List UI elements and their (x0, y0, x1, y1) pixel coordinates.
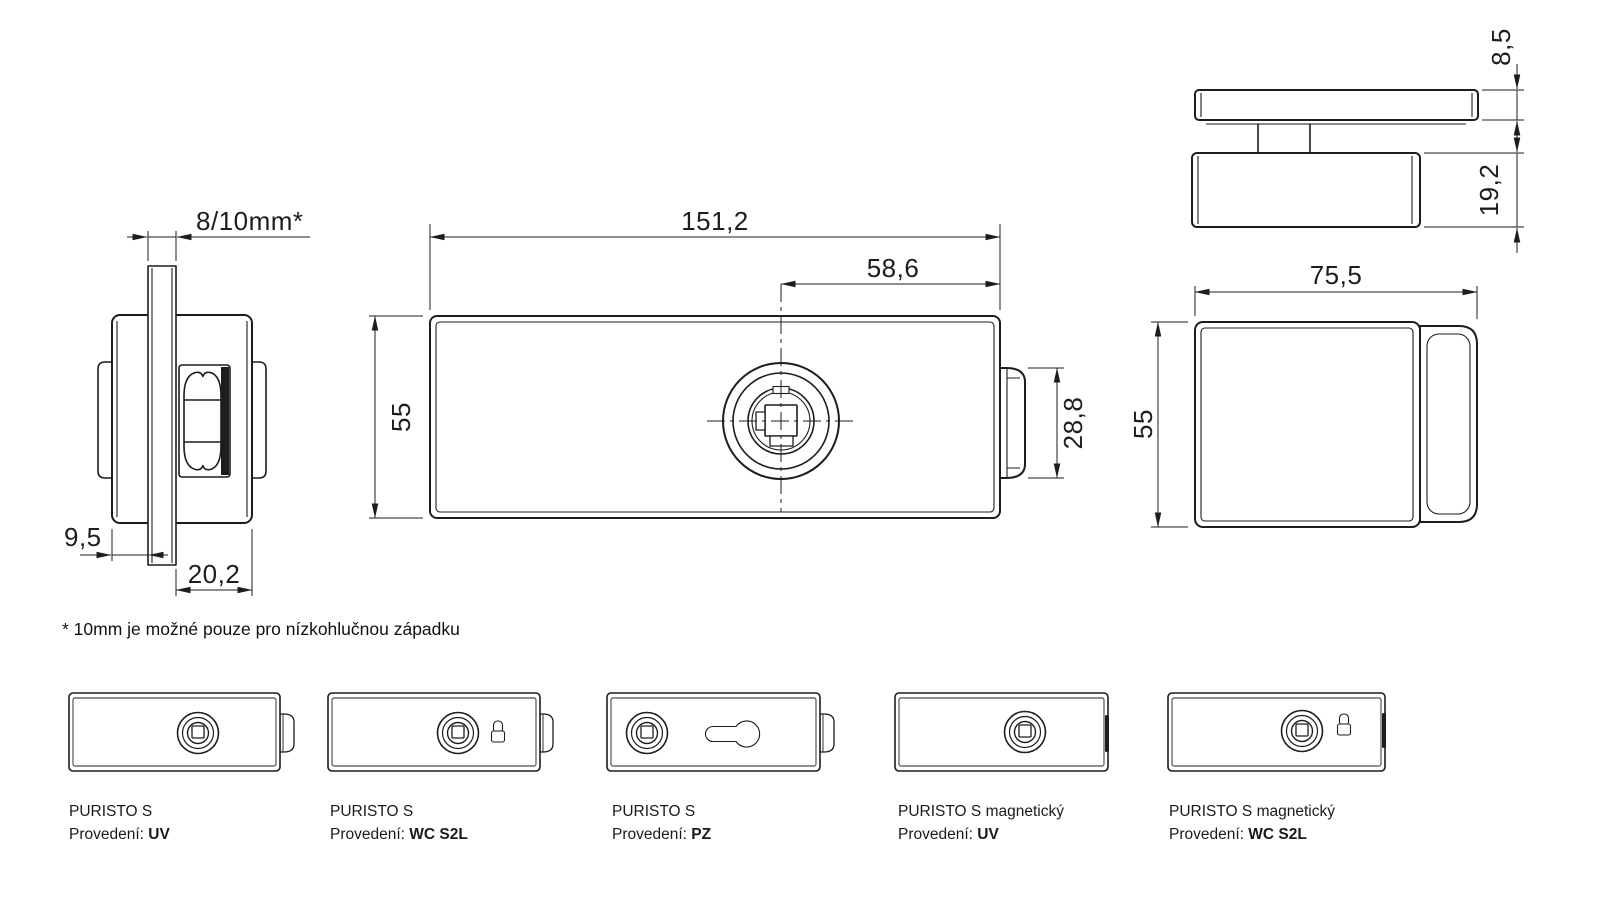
wc-indicator-knob (1338, 714, 1351, 735)
variant-name: PURISTO S magnetický (1169, 800, 1449, 823)
variant-finish-label: Provedení: (612, 826, 687, 843)
technical-drawing-page: 8/10mm* 9,5 20,2 (0, 0, 1600, 915)
dim-glass-thickness-label: 8/10mm* (196, 206, 304, 236)
variant-drawing-magnetic-wc-s2l (1168, 693, 1386, 771)
variant-finish-value: WC S2L (409, 826, 468, 843)
variant-caption: PURISTO S magnetický Provedení: UV (898, 800, 1178, 846)
dim-height-label: 55 (386, 402, 416, 432)
front-lock-body (430, 316, 1000, 518)
variant-finish-label: Provedení: (898, 826, 973, 843)
variant-finish-label: Provedení: (330, 826, 405, 843)
top-view-drawing: 8,5 19,2 (1192, 28, 1524, 253)
magnetic-latch-mark (1105, 715, 1109, 752)
footnote: * 10mm je možné pouze pro nízkohlučnou z… (62, 619, 460, 640)
side-lock-body (112, 315, 252, 523)
top-spindle-neck (1258, 124, 1310, 153)
side-view-drawing: 8/10mm* 9,5 20,2 (64, 206, 310, 596)
drawing-canvas: 8/10mm* 9,5 20,2 (0, 0, 1600, 915)
variant-name: PURISTO S (612, 800, 892, 823)
dim-width-label: 151,2 (681, 206, 749, 236)
variant-finish-value: UV (977, 826, 999, 843)
front-latch (1000, 368, 1025, 478)
side-glass-pane (148, 266, 176, 565)
variant-drawing-wc-s2l (328, 693, 553, 771)
variant-name: PURISTO S (330, 800, 610, 823)
variant-finish-value: PZ (691, 826, 711, 843)
variant-caption: PURISTO S magnetický Provedení: WC S2L (1169, 800, 1449, 846)
variant-caption: PURISTO S Provedení: UV (69, 800, 349, 846)
dim-body-thickness-label: 19,2 (1474, 164, 1504, 217)
variant-caption: PURISTO S Provedení: PZ (612, 800, 892, 846)
variant-finish-label: Provedení: (69, 826, 144, 843)
dim-plate-thickness-label: 8,5 (1486, 28, 1516, 66)
variant-finish-value: WC S2L (1248, 826, 1307, 843)
dim-latch-label: 28,8 (1058, 397, 1088, 450)
top-clamp-body (1192, 153, 1420, 227)
top-cover-plate (1195, 90, 1478, 120)
dim-end-width-label: 75,5 (1310, 260, 1363, 290)
end-view-drawing: 75,5 55 (1128, 260, 1477, 527)
front-view-drawing: 151,2 58,6 55 28,8 (369, 206, 1088, 518)
dim-end-height-label: 55 (1128, 409, 1158, 439)
variant-finish-value: UV (148, 826, 170, 843)
variant-name: PURISTO S magnetický (898, 800, 1178, 823)
end-latch (1420, 326, 1477, 522)
wc-indicator-knob (492, 721, 505, 742)
variant-name: PURISTO S (69, 800, 349, 823)
variant-drawing-pz (607, 693, 834, 771)
magnetic-latch-mark (1382, 713, 1386, 748)
dim-depth-label: 20,2 (188, 559, 241, 589)
dim-center-offset-label: 58,6 (867, 253, 920, 283)
end-lock-body (1195, 322, 1420, 527)
variant-finish-label: Provedení: (1169, 826, 1244, 843)
dim-offset-label: 9,5 (64, 522, 102, 552)
top-dimensions: 8,5 19,2 (1424, 28, 1524, 253)
variant-drawing-uv (69, 693, 294, 771)
variant-drawing-magnetic-uv (895, 693, 1109, 771)
variant-caption: PURISTO S Provedení: WC S2L (330, 800, 610, 846)
